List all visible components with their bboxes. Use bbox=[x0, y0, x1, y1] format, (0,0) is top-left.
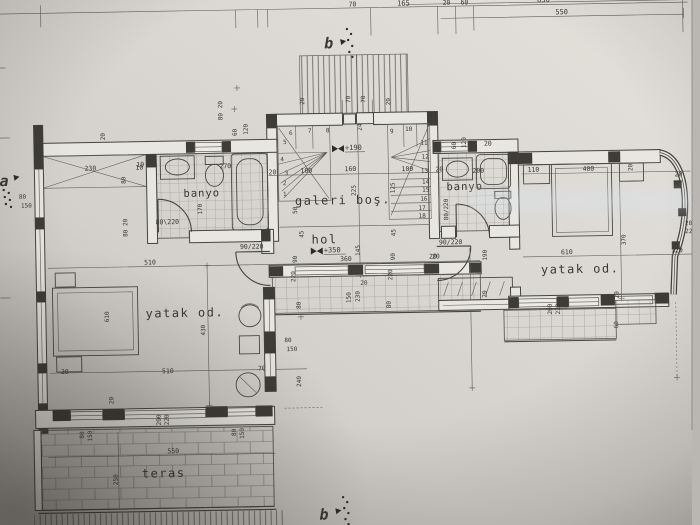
corner-shadow bbox=[0, 0, 700, 525]
floor-plan-drawing: 70 165 20 60 630 550 b 20 70 70 24 20 bbox=[0, 0, 700, 525]
paper-right-edge bbox=[692, 0, 700, 525]
floor-plan-photo: 70 165 20 60 630 550 b 20 70 70 24 20 bbox=[0, 0, 700, 525]
